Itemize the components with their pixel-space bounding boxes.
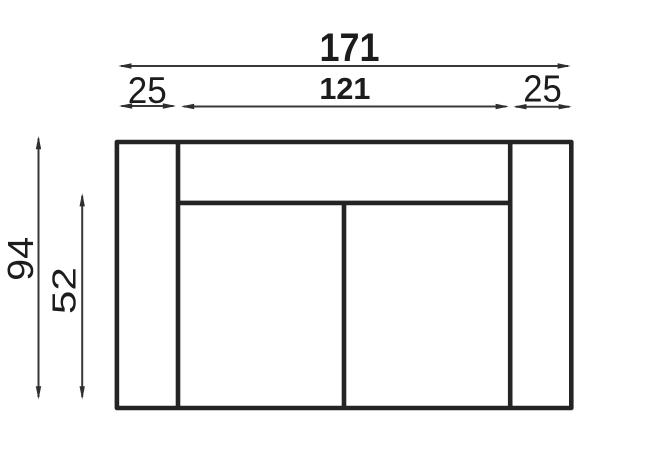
svg-text:25: 25 — [128, 69, 167, 111]
svg-text:52: 52 — [47, 267, 84, 314]
svg-text:171: 171 — [320, 25, 380, 70]
svg-text:94: 94 — [0, 237, 41, 281]
svg-text:25: 25 — [523, 69, 562, 111]
svg-text:121: 121 — [319, 71, 370, 106]
